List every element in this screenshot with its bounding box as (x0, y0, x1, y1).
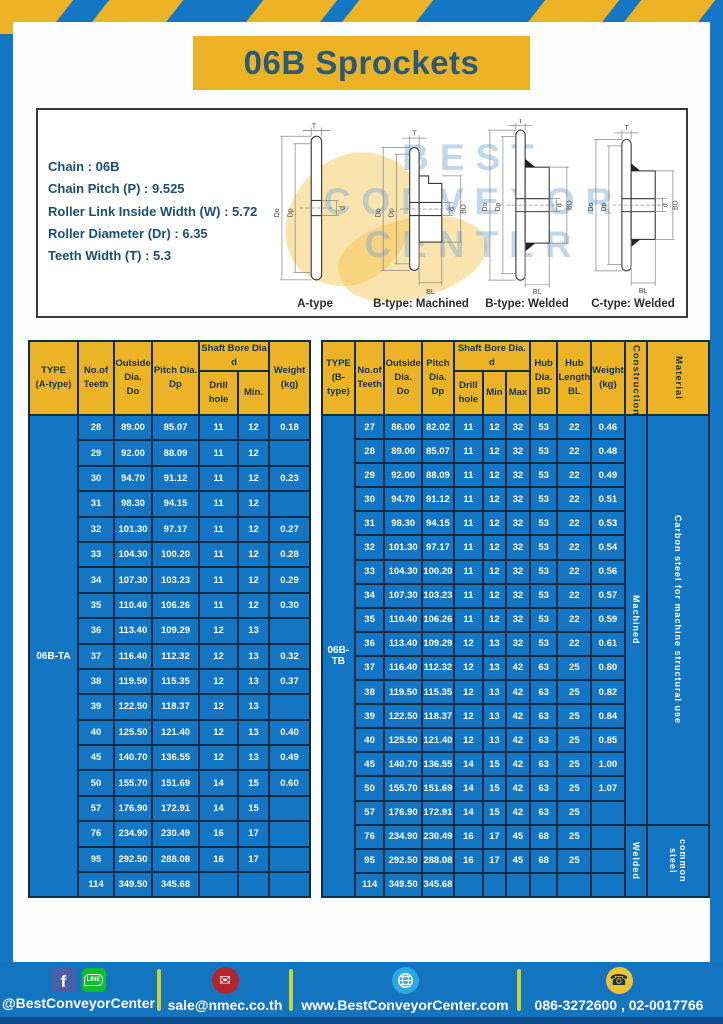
cell-pitch-dia: 345.68 (152, 872, 199, 897)
table-b-body: 06B-TB2786.0082.0211123253220.46Machined… (322, 415, 709, 897)
cell-weight: 0.18 (269, 415, 310, 440)
cell-min: 12 (483, 560, 506, 584)
figure-caption: A-type (297, 298, 333, 310)
cell-weight (269, 847, 310, 872)
cell-teeth: 35 (355, 608, 385, 632)
cell-min: 12 (238, 466, 269, 491)
cell-outside-dia: 94.70 (114, 466, 152, 491)
figure-a-type: T Do Dp d A-type (262, 110, 368, 316)
globe-icon[interactable] (392, 967, 419, 994)
cell-teeth: 39 (78, 694, 114, 719)
cell-pitch-dia: 121.40 (422, 728, 454, 752)
cell-outside-dia: 125.50 (384, 728, 421, 752)
cell-pitch-dia: 151.69 (152, 770, 199, 795)
cell-min: 12 (483, 511, 506, 535)
cell-hub-dia: 53 (530, 487, 558, 511)
cell-teeth: 37 (355, 656, 385, 680)
cell-pitch-dia: 82.02 (422, 415, 454, 439)
spec-line: Chain : 06B (48, 156, 262, 178)
svg-text:Dp: Dp (388, 208, 396, 217)
cell-teeth: 114 (355, 873, 385, 897)
cell-max: 42 (506, 728, 530, 752)
cell-outside-dia: 110.40 (384, 608, 421, 632)
cell-drill-hole: 12 (199, 669, 238, 694)
title-banner: 06B Sprockets (193, 36, 530, 90)
cell-max: 45 (506, 825, 530, 849)
cell-outside-dia: 113.40 (114, 618, 152, 643)
figure-caption: B-type: Machined (373, 298, 469, 310)
cell-hub-dia: 53 (530, 608, 558, 632)
cell-drill-hole: 11 (454, 584, 483, 608)
cell-hub-dia: 68 (530, 825, 558, 849)
cell-hub-length: 22 (557, 584, 591, 608)
cell-teeth: 45 (355, 752, 385, 776)
cell-pitch-dia: 109.29 (152, 618, 199, 643)
table-b-container: TYPE (B-type) No.of Teeth Outside Dia. D… (321, 340, 710, 898)
b-type-machined-drawing: T Do Dp d BD (371, 123, 471, 295)
cell-weight: 1.07 (591, 776, 625, 800)
cell-outside-dia: 349.50 (384, 873, 421, 897)
cell-outside-dia: 113.40 (384, 632, 421, 656)
cell-hub-length: 25 (557, 656, 591, 680)
cell-pitch-dia: 288.08 (152, 847, 199, 872)
cell-pitch-dia: 88.09 (152, 440, 199, 465)
cell-drill-hole: 11 (454, 560, 483, 584)
cell-pitch-dia: 121.40 (152, 720, 199, 745)
footer: f LINE @BestConveyorCenter ✉ sale@nmec.c… (0, 962, 723, 1017)
cell-max: 32 (506, 535, 530, 559)
cell-drill-hole: 11 (454, 415, 483, 439)
cell-pitch-dia: 85.07 (422, 439, 454, 463)
cell-teeth: 50 (78, 770, 114, 795)
cell-min: 17 (238, 821, 269, 846)
cell-hub-length: 22 (557, 535, 591, 559)
cell-pitch-dia: 91.12 (422, 487, 454, 511)
cell-pitch-dia: 115.35 (152, 669, 199, 694)
cell-outside-dia: 98.30 (114, 491, 152, 516)
cell-min: 15 (483, 752, 506, 776)
cell-outside-dia: 292.50 (114, 847, 152, 872)
cell-weight (591, 873, 625, 897)
cell-teeth: 29 (78, 440, 114, 465)
cell-drill-hole: 14 (454, 801, 483, 825)
cell-outside-dia: 122.50 (114, 694, 152, 719)
svg-text:BL: BL (426, 288, 435, 295)
cell-outside-dia: 176.90 (384, 801, 421, 825)
col-header-shaft-bore: Shaft Bore Dia. d (454, 341, 530, 371)
table-b-header: TYPE (B-type) No.of Teeth Outside Dia. D… (322, 341, 709, 415)
cell-drill-hole: 12 (454, 632, 483, 656)
cell-drill-hole: 11 (454, 487, 483, 511)
cell-max: 42 (506, 752, 530, 776)
cell-drill-hole: 12 (199, 618, 238, 643)
cell-hub-length: 25 (557, 704, 591, 728)
cell-pitch-dia: 94.15 (152, 491, 199, 516)
cell-outside-dia: 140.70 (114, 745, 152, 770)
cell-hub-dia: 53 (530, 439, 558, 463)
cell-pitch-dia: 103.23 (422, 584, 454, 608)
page: { "page": { "title": "06B Sprockets" }, … (0, 0, 723, 1024)
cell-outside-dia: 89.00 (114, 415, 152, 440)
cell-weight: 1.00 (591, 752, 625, 776)
cell-pitch-dia: 112.32 (152, 644, 199, 669)
cell-drill-hole: 12 (454, 728, 483, 752)
col-header-min: Min (483, 371, 506, 415)
sprocket-drawings: T Do Dp d A-type (262, 110, 686, 316)
cell-teeth: 33 (78, 542, 114, 567)
table-a-container: TYPE (A-type) No.of Teeth Outside Dia. D… (28, 340, 311, 898)
footer-social-section: f LINE @BestConveyorCenter (0, 968, 157, 1011)
svg-text:Do: Do (374, 208, 382, 217)
cell-hub-dia: 53 (530, 415, 558, 439)
cell-min: 12 (238, 567, 269, 592)
cell-min: 12 (238, 491, 269, 516)
website-url[interactable]: www.BestConveyorCenter.com (301, 997, 508, 1013)
cell-teeth: 38 (78, 669, 114, 694)
cell-drill-hole: 14 (199, 770, 238, 795)
cell-outside-dia: 92.00 (384, 463, 421, 487)
cell-weight: 0.46 (591, 415, 625, 439)
cell-weight: 0.80 (591, 656, 625, 680)
cell-weight (269, 491, 310, 516)
svg-text:Do: Do (482, 202, 489, 211)
cell-min: 12 (483, 487, 506, 511)
cell-max: 32 (506, 560, 530, 584)
cell-min: 13 (483, 656, 506, 680)
cell-min: 13 (238, 669, 269, 694)
cell-hub-length (557, 873, 591, 897)
cell-hub-dia: 63 (530, 752, 558, 776)
cell-min: 12 (238, 517, 269, 542)
cell-drill-hole: 16 (199, 821, 238, 846)
cell-min: 12 (483, 439, 506, 463)
cell-min: 15 (483, 801, 506, 825)
svg-text:Dp: Dp (495, 202, 502, 211)
cell-pitch-dia: 345.68 (422, 873, 454, 897)
cell-pitch-dia: 172.91 (152, 796, 199, 821)
cell-hub-dia: 53 (530, 560, 558, 584)
cell-min: 12 (483, 463, 506, 487)
cell-outside-dia: 98.30 (384, 511, 421, 535)
cell-pitch-dia: 85.07 (152, 415, 199, 440)
cell-teeth: 40 (78, 720, 114, 745)
cell-drill-hole: 11 (454, 535, 483, 559)
cell-pitch-dia: 100.20 (422, 560, 454, 584)
cell-pitch-dia: 103.23 (152, 567, 199, 592)
cell-teeth: 76 (355, 825, 385, 849)
col-header-hub-dia: Hub Dia. BD (530, 341, 558, 415)
spec-line: Teeth Width (T) : 5.3 (48, 245, 262, 267)
cell-outside-dia: 155.70 (114, 770, 152, 795)
cell-outside-dia: 101.30 (114, 517, 152, 542)
type-cell: 06B-TA (29, 415, 78, 897)
cell-drill-hole: 14 (199, 796, 238, 821)
cell-min: 12 (483, 415, 506, 439)
cell-teeth: 29 (355, 463, 385, 487)
cell-teeth: 39 (355, 704, 385, 728)
cell-drill-hole: 12 (199, 694, 238, 719)
cell-max (506, 873, 530, 897)
cell-min: 15 (238, 770, 269, 795)
cell-min: 13 (238, 644, 269, 669)
phone-icon[interactable]: ☎ (606, 967, 633, 994)
cell-hub-dia: 63 (530, 728, 558, 752)
cell-pitch-dia: 172.91 (422, 801, 454, 825)
cell-weight: 0.61 (591, 632, 625, 656)
cell-pitch-dia: 151.69 (422, 776, 454, 800)
cell-min: 13 (238, 745, 269, 770)
cell-drill-hole: 11 (454, 463, 483, 487)
cell-drill-hole (454, 873, 483, 897)
svg-text:d: d (448, 207, 456, 211)
col-header-min: Min. (238, 371, 269, 415)
cell-teeth: 37 (78, 644, 114, 669)
cell-min: 12 (483, 584, 506, 608)
cell-outside-dia: 116.40 (114, 644, 152, 669)
table-a-header: TYPE (A-type) No.of Teeth Outside Dia. D… (29, 341, 310, 415)
svg-text:Do: Do (588, 202, 595, 211)
cell-teeth: 36 (78, 618, 114, 643)
material-cell: Carbon steel for machine structural use (647, 415, 709, 825)
cell-weight: 0.59 (591, 608, 625, 632)
cell-pitch-dia: 106.26 (422, 608, 454, 632)
table-row: 06B-TA2889.0085.0711120.18 (29, 415, 310, 440)
cell-weight: 0.57 (591, 584, 625, 608)
cell-outside-dia: 89.00 (384, 439, 421, 463)
type-cell: 06B-TB (322, 415, 355, 897)
cell-hub-dia: 63 (530, 680, 558, 704)
svg-text:T: T (624, 125, 629, 132)
svg-text:d: d (338, 206, 346, 210)
cell-teeth: 28 (78, 415, 114, 440)
footer-website-section: www.BestConveyorCenter.com (293, 967, 517, 1013)
col-header-pitch-dia: Pitch Dia. Dp (152, 341, 199, 415)
cell-drill-hole: 11 (454, 608, 483, 632)
cell-min: 12 (483, 535, 506, 559)
cell-outside-dia: 140.70 (384, 752, 421, 776)
cell-weight: 0.54 (591, 535, 625, 559)
col-header-weight: Weight (kg) (269, 341, 310, 415)
cell-min: 13 (483, 728, 506, 752)
cell-teeth: 57 (78, 796, 114, 821)
cell-min: 13 (483, 704, 506, 728)
cell-hub-length: 22 (557, 511, 591, 535)
svg-text:T: T (518, 119, 523, 126)
cell-min: 15 (483, 776, 506, 800)
cell-outside-dia: 92.00 (114, 440, 152, 465)
cell-drill-hole: 12 (454, 704, 483, 728)
cell-min: 13 (483, 680, 506, 704)
cell-outside-dia: 292.50 (384, 849, 421, 873)
cell-min: 13 (238, 694, 269, 719)
diagram-panel: BEST CONVEYOR CENTER Chain : 06B Chain P… (36, 108, 688, 318)
cell-teeth: 114 (78, 872, 114, 897)
cell-min: 13 (483, 632, 506, 656)
line-bubble-label: LINE (84, 974, 104, 986)
cell-hub-length: 25 (557, 680, 591, 704)
cell-max: 32 (506, 463, 530, 487)
cell-pitch-dia: 109.29 (422, 632, 454, 656)
footer-email-section: ✉ sale@nmec.co.th (161, 967, 289, 1013)
cell-min: 12 (238, 593, 269, 618)
cell-pitch-dia: 100.20 (152, 542, 199, 567)
cell-weight: 0.30 (269, 593, 310, 618)
cell-drill-hole: 12 (454, 656, 483, 680)
cell-drill-hole: 14 (454, 776, 483, 800)
col-header-outside-dia: Outside Dia. Do (384, 341, 421, 415)
col-header-teeth: No.of Teeth (355, 341, 385, 415)
cell-min (238, 872, 269, 897)
cell-drill-hole (199, 872, 238, 897)
cell-outside-dia: 119.50 (384, 680, 421, 704)
cell-max: 42 (506, 801, 530, 825)
figure-c-type-welded: T Do Dp d BD (580, 110, 686, 316)
c-type-welded-drawing: T Do Dp d BD (583, 119, 683, 295)
social-handle[interactable]: @BestConveyorCenter (2, 995, 155, 1011)
mail-icon[interactable]: ✉ (212, 967, 239, 994)
cell-outside-dia: 101.30 (384, 535, 421, 559)
cell-outside-dia: 86.00 (384, 415, 421, 439)
cell-min: 12 (238, 415, 269, 440)
cell-max: 32 (506, 487, 530, 511)
cell-max: 32 (506, 632, 530, 656)
cell-teeth: 76 (78, 821, 114, 846)
chain-specs: Chain : 06B Chain Pitch (P) : 9.525 Roll… (38, 110, 262, 316)
cell-hub-length: 25 (557, 801, 591, 825)
cell-outside-dia: 155.70 (384, 776, 421, 800)
cell-hub-length: 22 (557, 439, 591, 463)
figure-b-type-machined: T Do Dp d BD (368, 110, 474, 316)
svg-text:BD: BD (566, 200, 573, 210)
col-header-drill-hole: Drill hole (199, 371, 238, 415)
cell-hub-dia: 53 (530, 511, 558, 535)
cell-hub-length: 22 (557, 560, 591, 584)
cell-weight (591, 801, 625, 825)
cell-hub-dia (530, 873, 558, 897)
cell-max: 32 (506, 511, 530, 535)
cell-pitch-dia: 118.37 (152, 694, 199, 719)
cell-max: 45 (506, 849, 530, 873)
spec-line: Roller Link Inside Width (W) : 5.72 (48, 201, 262, 223)
cell-hub-dia: 63 (530, 776, 558, 800)
cell-teeth: 38 (355, 680, 385, 704)
cell-outside-dia: 234.90 (114, 821, 152, 846)
cell-pitch-dia: 115.35 (422, 680, 454, 704)
cell-outside-dia: 107.30 (384, 584, 421, 608)
col-header-hub-length: Hub Length BL (557, 341, 591, 415)
svg-text:T: T (312, 123, 317, 131)
cell-teeth: 27 (355, 415, 385, 439)
cell-pitch-dia: 97.17 (422, 535, 454, 559)
cell-outside-dia: 104.30 (384, 560, 421, 584)
cell-teeth: 28 (355, 439, 385, 463)
cell-max: 32 (506, 415, 530, 439)
cell-pitch-dia: 91.12 (152, 466, 199, 491)
cell-max: 42 (506, 704, 530, 728)
cell-drill-hole: 11 (199, 491, 238, 516)
cell-weight: 0.27 (269, 517, 310, 542)
cell-pitch-dia: 136.55 (152, 745, 199, 770)
line-icon[interactable]: LINE (82, 968, 106, 992)
cell-drill-hole: 11 (199, 567, 238, 592)
table-b: TYPE (B-type) No.of Teeth Outside Dia. D… (321, 340, 710, 898)
cell-weight: 0.49 (269, 745, 310, 770)
cell-teeth: 31 (355, 511, 385, 535)
cell-pitch-dia: 230.49 (422, 825, 454, 849)
cell-outside-dia: 94.70 (384, 487, 421, 511)
cell-hub-dia: 63 (530, 704, 558, 728)
cell-drill-hole: 16 (199, 847, 238, 872)
cell-teeth: 57 (355, 801, 385, 825)
cell-drill-hole: 11 (199, 415, 238, 440)
phone-numbers[interactable]: 086-3272600 , 02-0017766 (535, 997, 704, 1013)
cell-teeth: 40 (355, 728, 385, 752)
col-header-drill-hole: Drill hole (454, 371, 483, 415)
cell-teeth: 50 (355, 776, 385, 800)
cell-teeth: 31 (78, 491, 114, 516)
cell-weight: 0.60 (269, 770, 310, 795)
cell-min: 12 (483, 608, 506, 632)
cell-drill-hole: 12 (199, 745, 238, 770)
cell-min: 17 (483, 825, 506, 849)
cell-hub-dia: 63 (530, 656, 558, 680)
cell-pitch-dia: 106.26 (152, 593, 199, 618)
cell-min: 13 (238, 618, 269, 643)
svg-text:BD: BD (459, 204, 467, 214)
cell-drill-hole: 14 (454, 752, 483, 776)
cell-outside-dia: 122.50 (384, 704, 421, 728)
svg-text:Dp: Dp (286, 208, 294, 217)
cell-drill-hole: 16 (454, 825, 483, 849)
cell-pitch-dia: 112.32 (422, 656, 454, 680)
cell-drill-hole: 12 (199, 644, 238, 669)
cell-weight: 0.53 (591, 511, 625, 535)
cell-weight (269, 796, 310, 821)
cell-weight: 0.29 (269, 567, 310, 592)
bottom-border-strip (0, 1017, 723, 1024)
cell-hub-length: 22 (557, 463, 591, 487)
cell-teeth: 34 (355, 584, 385, 608)
cell-teeth: 95 (355, 849, 385, 873)
col-header-construction: Construction (625, 341, 647, 415)
email-address[interactable]: sale@nmec.co.th (168, 997, 283, 1013)
cell-weight: 0.23 (269, 466, 310, 491)
cell-min: 17 (238, 847, 269, 872)
cell-max: 42 (506, 776, 530, 800)
col-header-teeth: No.of Teeth (78, 341, 114, 415)
cell-hub-length: 22 (557, 608, 591, 632)
cell-hub-dia: 53 (530, 584, 558, 608)
table-a-body: 06B-TA2889.0085.0711120.182992.0088.0911… (29, 415, 310, 897)
svg-text:Dp: Dp (601, 202, 608, 211)
cell-hub-dia: 53 (530, 632, 558, 656)
cell-teeth: 33 (355, 560, 385, 584)
facebook-icon[interactable]: f (52, 968, 76, 992)
cell-weight: 0.84 (591, 704, 625, 728)
col-header-type: TYPE (B-type) (322, 341, 355, 415)
cell-weight (269, 694, 310, 719)
svg-text:BD: BD (672, 200, 679, 210)
col-header-max: Max (506, 371, 530, 415)
figure-b-type-welded: T Do Dp d BD (474, 110, 580, 316)
page-title: 06B Sprockets (244, 44, 480, 82)
cell-drill-hole: 11 (199, 440, 238, 465)
cell-weight: 0.85 (591, 728, 625, 752)
cell-weight (269, 821, 310, 846)
cell-weight: 0.37 (269, 669, 310, 694)
cell-pitch-dia: 94.15 (422, 511, 454, 535)
cell-hub-length: 25 (557, 776, 591, 800)
